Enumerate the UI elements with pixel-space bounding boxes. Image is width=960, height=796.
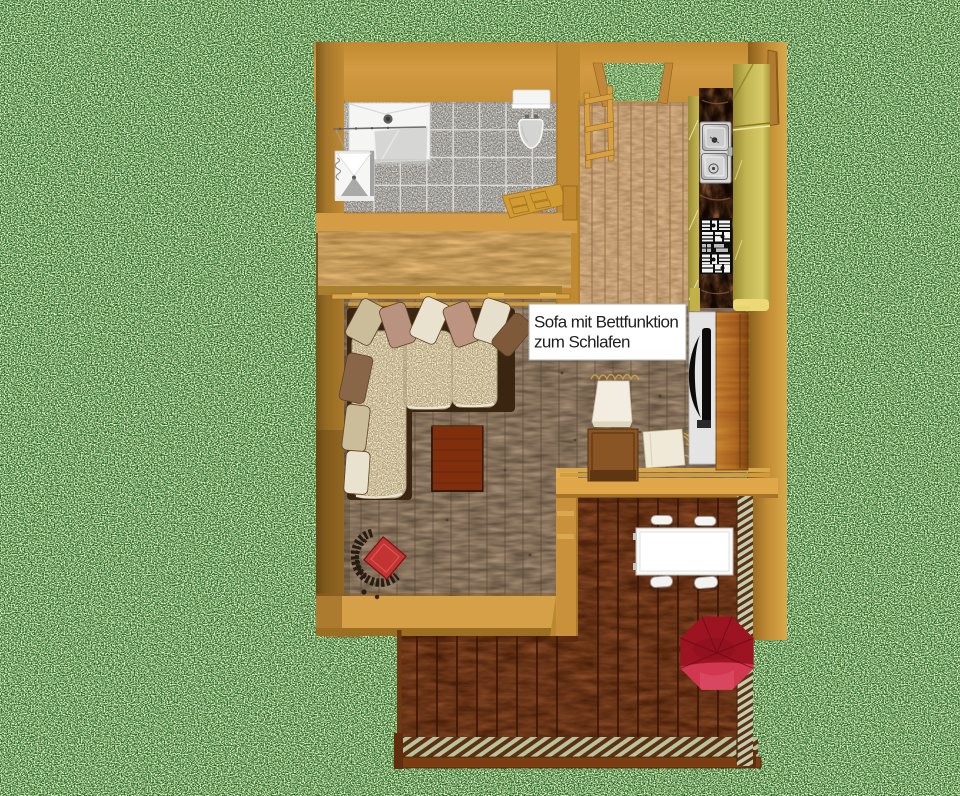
svg-text:Sofa mit Bettfunktion: Sofa mit Bettfunktion <box>534 313 678 332</box>
svg-text:zum Schlafen: zum Schlafen <box>534 333 630 352</box>
